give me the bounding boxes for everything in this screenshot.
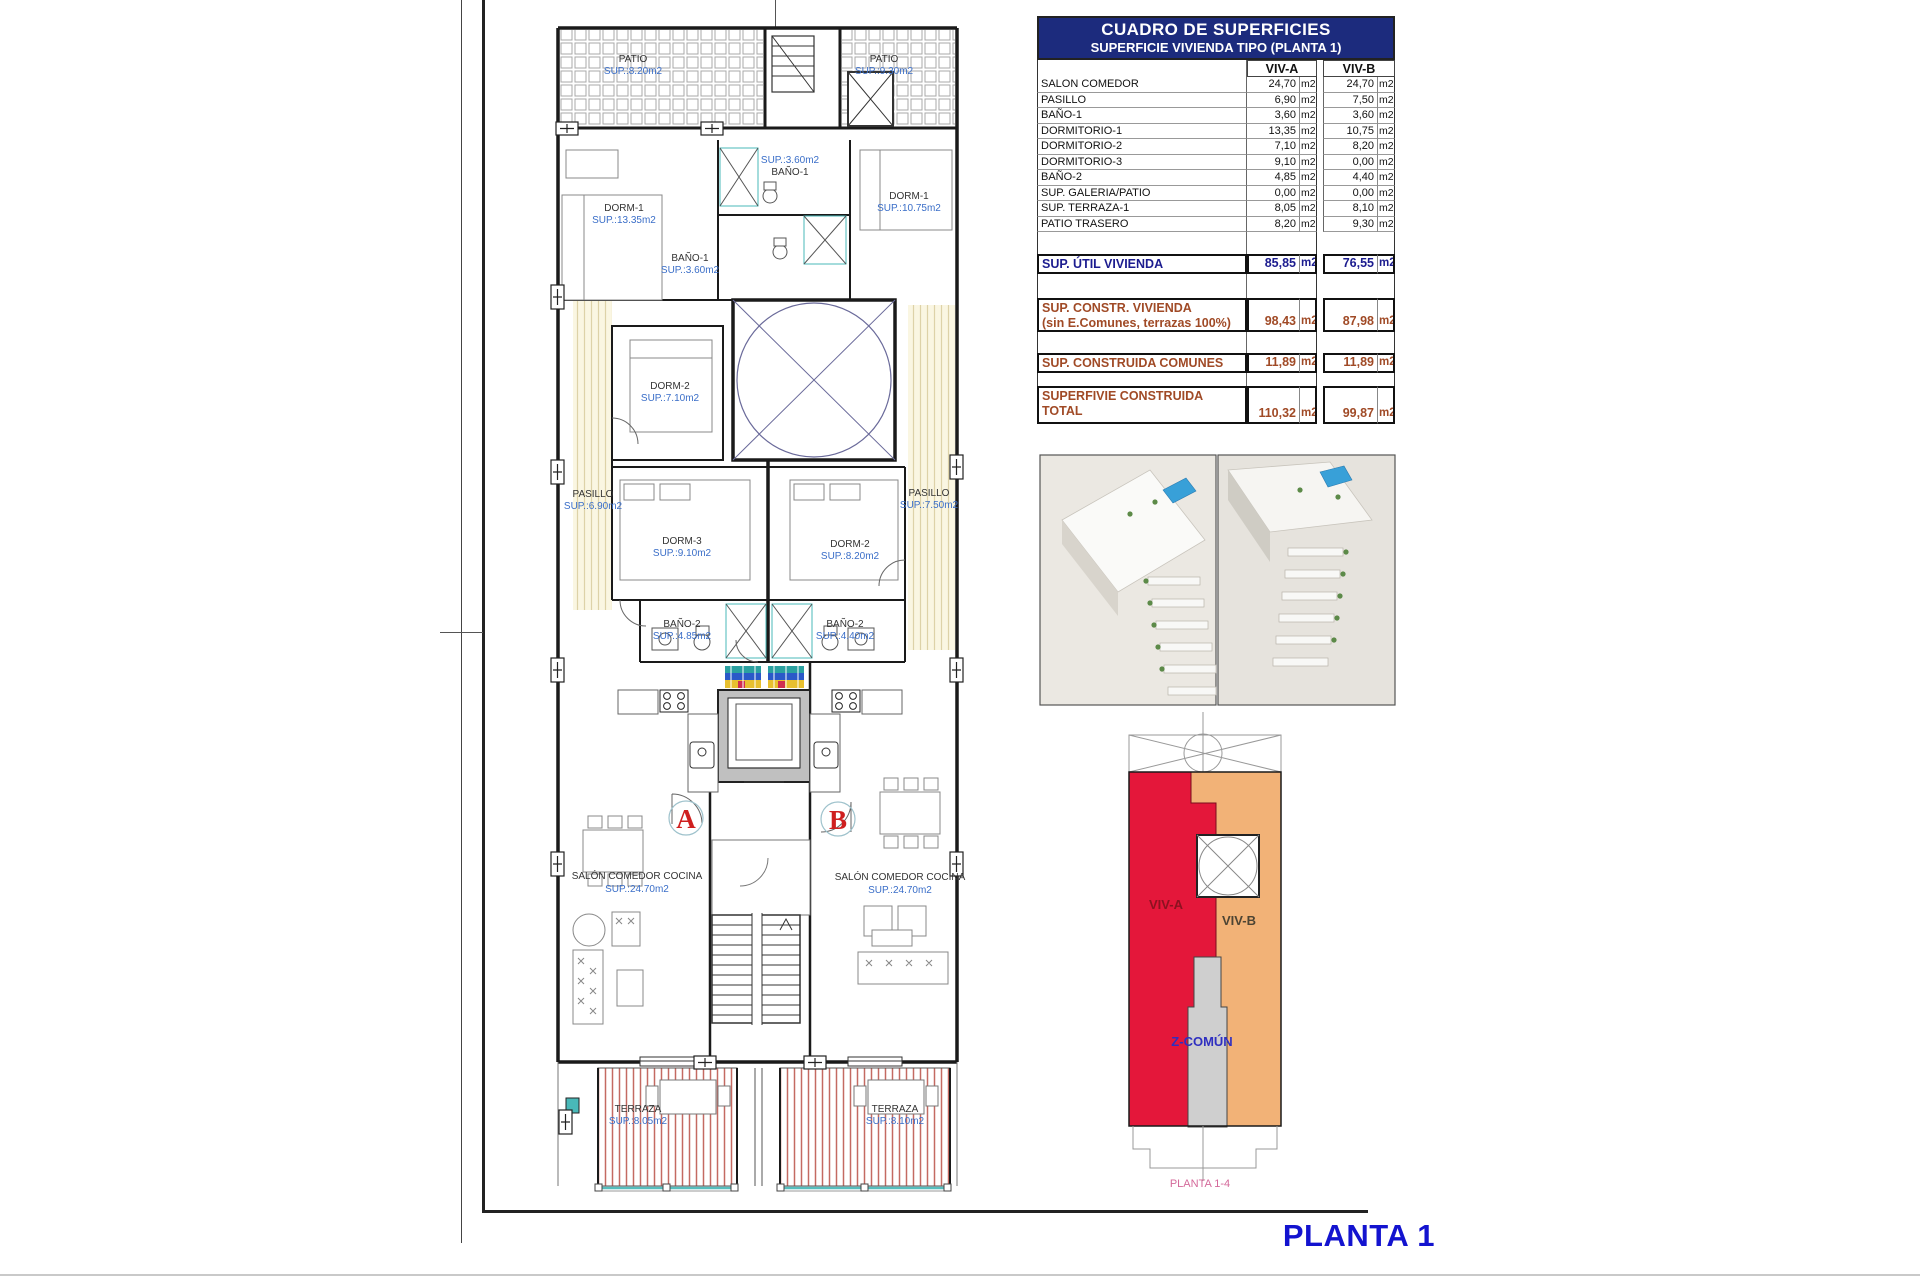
- svg-text:DORM-2: DORM-2: [830, 539, 870, 550]
- keyplan-viv-a-label: VIV-A: [1149, 897, 1184, 912]
- lightwell: [733, 300, 895, 460]
- render-left: [1040, 455, 1216, 705]
- col-header-viv-b: VIV-B: [1323, 60, 1395, 77]
- svg-text:SUP.:10.75m2: SUP.:10.75m2: [877, 203, 941, 214]
- svg-text:PASILLO: PASILLO: [909, 488, 950, 499]
- summary-comunes-label: SUP. CONSTRUIDA COMUNES: [1037, 353, 1247, 373]
- render-images: [1038, 453, 1398, 707]
- svg-text:BAÑO-2: BAÑO-2: [663, 617, 701, 630]
- sheet-fold-line: [461, 0, 462, 1243]
- svg-text:SUP.:8.20m2: SUP.:8.20m2: [604, 66, 663, 77]
- svg-text:SALÓN COMEDOR COCINA: SALÓN COMEDOR COCINA: [835, 870, 966, 883]
- surface-table-grid: VIV-A VIV-B SALON COMEDOR24,70m224,70m2 …: [1037, 60, 1395, 424]
- keyplan-lightwell: [1197, 835, 1259, 897]
- plan-sheet: A B PATIOSUP.:8.20m2 PATIOSUP.:9.30m2 SU…: [0, 0, 1920, 1280]
- svg-text:SUP.:24.70m2: SUP.:24.70m2: [868, 885, 932, 896]
- row-label: BAÑO-2: [1037, 170, 1247, 186]
- table-title: CUADRO DE SUPERFICIES: [1039, 20, 1393, 40]
- page-title: PLANTA 1: [1150, 1218, 1435, 1254]
- keyplan-caption: PLANTA 1-4: [1170, 1178, 1230, 1190]
- svg-text:SUP.:7.10m2: SUP.:7.10m2: [641, 393, 700, 404]
- svg-text:PATIO: PATIO: [870, 54, 899, 65]
- col-header-viv-a: VIV-A: [1247, 60, 1317, 77]
- kitchen-a: [618, 690, 718, 792]
- key-plan: VIV-A VIV-B Z-COMÚN PLANTA 1-4: [1120, 712, 1300, 1192]
- svg-text:DORM-1: DORM-1: [889, 191, 929, 202]
- surface-table-header: CUADRO DE SUPERFICIES SUPERFICIE VIVIEND…: [1037, 16, 1395, 60]
- keyplan-top-outline: [1129, 712, 1281, 772]
- svg-text:SUP.:8.10m2: SUP.:8.10m2: [866, 1116, 925, 1127]
- row-label: SUP. GALERIA/PATIO: [1037, 186, 1247, 202]
- fold-tick: [440, 632, 483, 633]
- row-label: DORMITORIO-3: [1037, 155, 1247, 171]
- row-label: SALON COMEDOR: [1037, 77, 1247, 93]
- unit-letters: A B: [669, 801, 855, 836]
- svg-text:SUP.:8.20m2: SUP.:8.20m2: [821, 551, 880, 562]
- svg-text:SUP.:8.05m2: SUP.:8.05m2: [609, 1116, 668, 1127]
- svg-text:SUP.:7.50m2: SUP.:7.50m2: [900, 500, 959, 511]
- keyplan-footprint: [1133, 1126, 1277, 1181]
- svg-text:PATIO: PATIO: [619, 54, 648, 65]
- svg-text:SUP.:3.60m2: SUP.:3.60m2: [661, 265, 720, 276]
- row-label: BAÑO-1: [1037, 108, 1247, 124]
- frame-left-line: [482, 0, 485, 1212]
- summary-constr-label: SUP. CONSTR. VIVIENDA(sin E.Comunes, ter…: [1037, 298, 1247, 332]
- row-label: PATIO TRASERO: [1037, 217, 1247, 233]
- mosaic-tiles: [725, 666, 804, 688]
- unit-letter-a: A: [676, 804, 696, 834]
- stairs: [712, 840, 810, 1025]
- svg-text:SUP.:6.90m2: SUP.:6.90m2: [564, 501, 623, 512]
- svg-text:SALÓN COMEDOR COCINA: SALÓN COMEDOR COCINA: [572, 869, 703, 882]
- floor-plan: A B PATIOSUP.:8.20m2 PATIOSUP.:9.30m2 SU…: [545, 10, 985, 1200]
- svg-text:DORM-3: DORM-3: [662, 536, 702, 547]
- kitchen-b: [810, 690, 902, 792]
- surface-table: CUADRO DE SUPERFICIES SUPERFICIE VIVIEND…: [1037, 16, 1395, 424]
- summary-util-label: SUP. ÚTIL VIVIENDA: [1037, 254, 1247, 274]
- patio-tiles: [560, 30, 955, 126]
- svg-text:SUP.:3.60m2: SUP.:3.60m2: [761, 155, 820, 166]
- unit-letter-b: B: [829, 805, 847, 835]
- row-label: DORMITORIO-1: [1037, 124, 1247, 140]
- keyplan-viv-b-label: VIV-B: [1222, 913, 1256, 928]
- svg-text:SUP.:24.70m2: SUP.:24.70m2: [605, 884, 669, 895]
- row-label: DORMITORIO-2: [1037, 139, 1247, 155]
- svg-text:DORM-1: DORM-1: [604, 203, 644, 214]
- summary-total-label: SUPERFIVIE CONSTRUIDATOTAL: [1037, 386, 1247, 424]
- svg-text:TERRAZA: TERRAZA: [872, 1104, 919, 1115]
- table-subtitle: SUPERFICIE VIVIENDA TIPO (PLANTA 1): [1039, 40, 1393, 55]
- sheet-bottom-edge: [0, 1274, 1920, 1276]
- elevator: [718, 690, 810, 782]
- svg-text:BAÑO-2: BAÑO-2: [826, 617, 864, 630]
- svg-text:PASILLO: PASILLO: [573, 489, 614, 500]
- svg-text:SUP.:4.85m2: SUP.:4.85m2: [653, 631, 712, 642]
- svg-text:SUP.:13.35m2: SUP.:13.35m2: [592, 215, 656, 226]
- svg-text:TERRAZA: TERRAZA: [615, 1104, 662, 1115]
- svg-text:SUP.:9.30m2: SUP.:9.30m2: [855, 66, 914, 77]
- svg-text:BAÑO-1: BAÑO-1: [671, 251, 709, 264]
- svg-text:BAÑO-1: BAÑO-1: [771, 165, 809, 178]
- render-right: [1218, 455, 1395, 705]
- svg-text:DORM-2: DORM-2: [650, 381, 690, 392]
- keyplan-comun-label: Z-COMÚN: [1171, 1034, 1232, 1049]
- svg-text:SUP.:4.40m2: SUP.:4.40m2: [816, 631, 875, 642]
- frame-bottom-line: [482, 1210, 1368, 1213]
- svg-text:SUP.:9.10m2: SUP.:9.10m2: [653, 548, 712, 559]
- row-label: SUP. TERRAZA-1: [1037, 201, 1247, 217]
- row-label: PASILLO: [1037, 93, 1247, 109]
